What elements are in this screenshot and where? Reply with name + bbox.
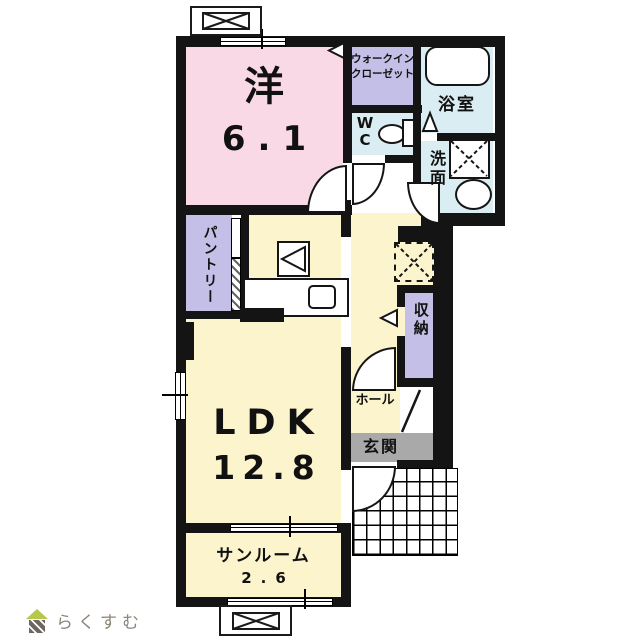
door-swing-icon <box>352 163 385 205</box>
ldk-label: LDK <box>186 402 341 446</box>
dimension-tick <box>289 516 291 537</box>
wall <box>397 336 405 378</box>
entrance-label: 玄関 <box>345 437 417 457</box>
pantry-folding-door-icon <box>231 258 241 311</box>
sunroom-divider-window-icon <box>230 524 338 532</box>
ldk-size: 12.8 <box>186 447 341 488</box>
window-shutter-icon <box>190 6 262 36</box>
fridge-space-icon <box>394 242 434 282</box>
dimension-tick <box>304 589 306 609</box>
bath-label: 浴室 <box>421 95 493 116</box>
logo-body-icon <box>29 620 45 633</box>
window-track-line <box>230 527 338 528</box>
wall <box>341 523 351 607</box>
wic-label-line1: ウォークイン <box>350 53 415 66</box>
kitchen-counter-base <box>240 308 284 322</box>
floorplan-canvas: 洋 6.1 ウォークイン クローゼット 浴室 W C 洗面 パントリー LDK … <box>0 0 640 640</box>
window-track-line <box>180 372 181 420</box>
dimension-tick <box>162 394 188 396</box>
sink-icon <box>455 179 492 210</box>
bathtub-icon <box>425 46 490 86</box>
kitchen-sink-icon <box>308 285 336 309</box>
logo-roof-icon <box>26 609 48 619</box>
sunroom-label: サンルーム <box>186 546 341 567</box>
pantry-label: パントリー <box>200 222 218 307</box>
door-leaf-line <box>400 388 422 434</box>
wall <box>186 311 241 319</box>
opening-triangle-icon <box>380 309 399 327</box>
storage-label: 収納 <box>411 302 430 338</box>
bedroom-size: 6.1 <box>199 118 329 161</box>
wall <box>495 36 505 226</box>
wall <box>397 293 405 307</box>
wall <box>176 322 194 360</box>
toilet-tank-icon <box>402 119 415 147</box>
wall <box>398 226 433 242</box>
wall <box>433 226 453 470</box>
site-logo: らくすむ <box>26 608 144 633</box>
window-shutter-icon <box>219 605 292 636</box>
washroom-label: 洗面 <box>426 150 446 188</box>
stove-icon <box>277 241 310 277</box>
wall <box>385 155 421 163</box>
wc-label-c: C <box>355 131 375 150</box>
wall <box>397 378 440 387</box>
logo-house-icon <box>26 609 48 633</box>
window-track-line <box>220 41 286 42</box>
window-track-line <box>227 601 333 602</box>
bedroom-label: 洋 <box>199 62 329 112</box>
washer-pan-icon <box>449 139 490 179</box>
pantry-door-icon <box>231 218 241 258</box>
wic-label-line2: クローゼット <box>350 68 415 81</box>
wall <box>397 285 433 293</box>
wall <box>352 105 422 113</box>
wc-label-w: W <box>355 114 375 133</box>
opening-triangle-icon <box>328 42 346 59</box>
hall-label: ホール <box>349 393 401 409</box>
logo-text: らくすむ <box>56 608 144 633</box>
sunroom-size: 2.6 <box>186 569 341 588</box>
